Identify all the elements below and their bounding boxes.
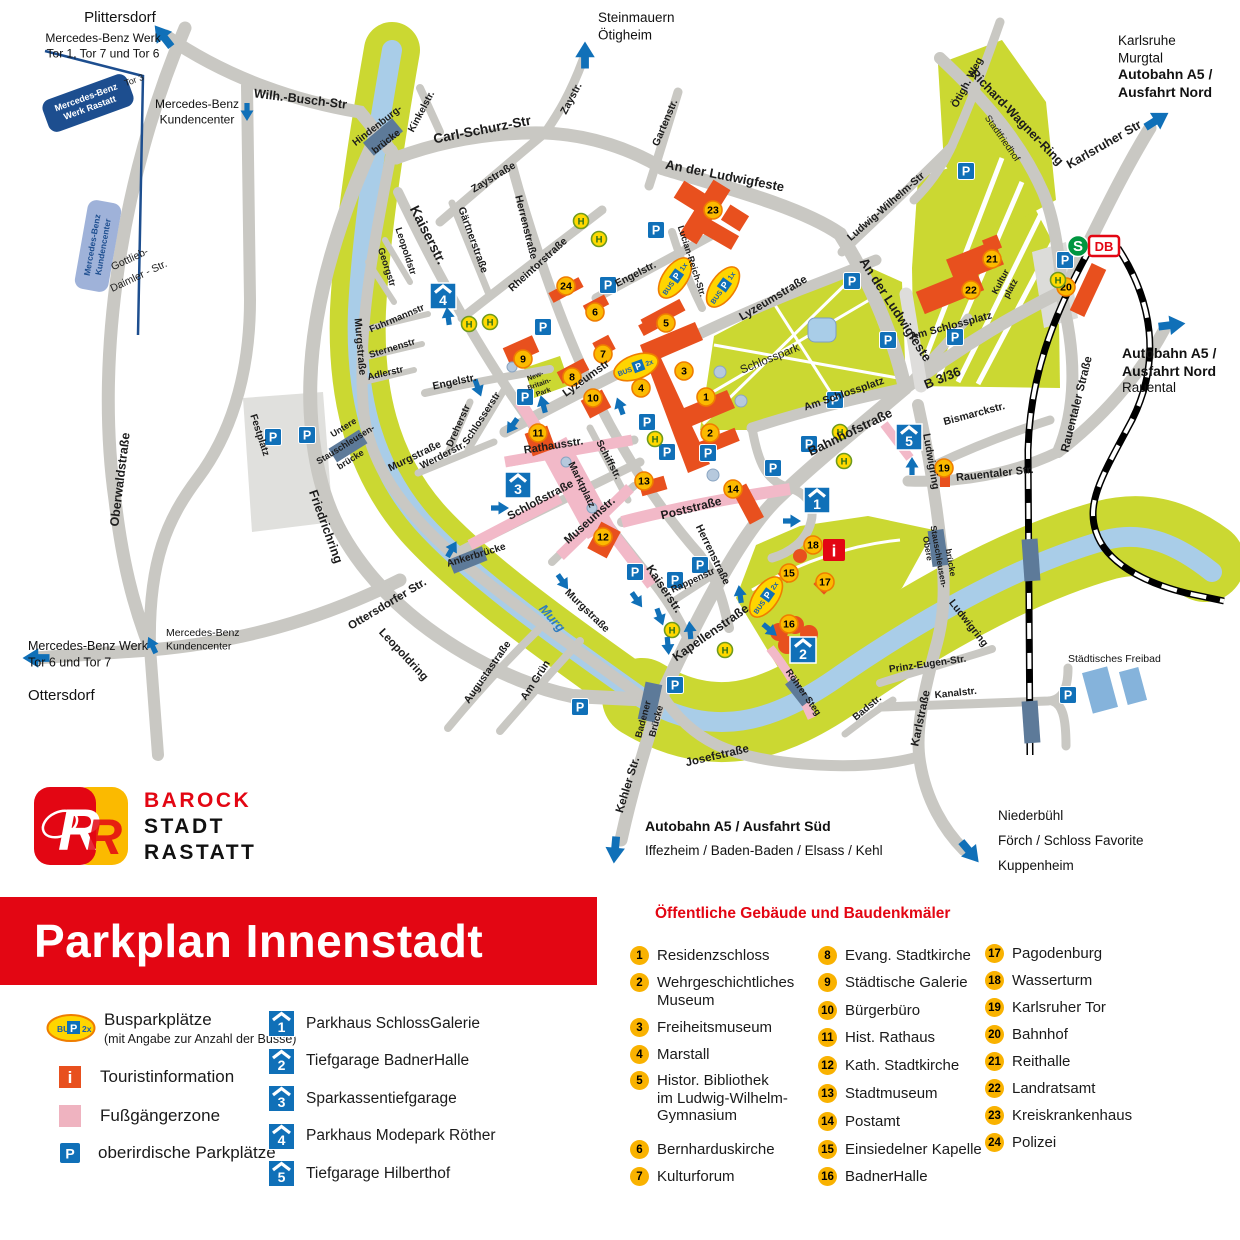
garage-icon: 2 (268, 1048, 295, 1075)
svg-text:P: P (663, 446, 671, 460)
svg-text:4: 4 (439, 292, 447, 308)
building-number-badge: 9 (818, 973, 837, 992)
svg-text:9: 9 (520, 354, 526, 366)
parking-icon: P (648, 222, 665, 239)
svg-text:P: P (539, 321, 547, 335)
building-number-badge: 1 (630, 946, 649, 965)
building-name: Freiheitsmuseum (657, 1018, 772, 1037)
street-label: Kanalstr. (934, 686, 977, 701)
svg-text:P: P (643, 416, 651, 430)
garage-icon: 4 (268, 1123, 295, 1150)
svg-text:H: H (596, 234, 603, 245)
poi-marker-10: 10 (584, 389, 602, 407)
building-list-item-19: 19Karlsruher Tor (985, 998, 1106, 1017)
poi-marker-5: 5 (657, 314, 675, 332)
parking-icon: P (765, 460, 782, 477)
building-list-item-14: 14Postamt (818, 1112, 900, 1131)
building-list-item-22: 22Landratsamt (985, 1079, 1095, 1098)
building-number-badge: 14 (818, 1112, 837, 1131)
street-label: Rauentaler Str. (955, 464, 1033, 484)
svg-text:16: 16 (783, 619, 795, 631)
building-number-badge: 24 (985, 1133, 1004, 1152)
building-list-item-13: 13Stadtmuseum (818, 1084, 938, 1103)
parking-icon: P (659, 444, 676, 461)
building-name: Karlsruher Tor (1012, 998, 1106, 1017)
svg-text:24: 24 (560, 281, 572, 293)
building-list-item-16: 16BadnerHalle (818, 1167, 928, 1186)
building-list-item-17: 17Pagodenburg (985, 944, 1102, 963)
svg-text:R: R (86, 809, 122, 865)
legend-info-row: i Touristinformation (59, 1066, 234, 1088)
building-list-item-18: 18Wasserturm (985, 971, 1092, 990)
fountain-dot (735, 395, 747, 407)
parking-icon: P (572, 699, 589, 716)
freibad-buildings (1082, 666, 1147, 713)
garage-marker-5: 5 (896, 424, 922, 450)
building-number-badge: 5 (630, 1071, 649, 1090)
parking-icon: P (639, 414, 656, 431)
bus-parking-icon: BUS P 2x (46, 1013, 96, 1043)
svg-text:i: i (832, 542, 837, 561)
svg-text:5: 5 (278, 1169, 286, 1185)
place-label: KarlsruheMurgtal (1118, 33, 1176, 66)
svg-text:14: 14 (727, 484, 739, 496)
svg-text:P: P (521, 391, 529, 405)
building-number-badge: 8 (818, 946, 837, 965)
svg-text:17: 17 (819, 577, 831, 589)
street-label: Poststraße (659, 494, 723, 523)
poi-marker-3: 3 (675, 362, 693, 380)
svg-text:21: 21 (986, 254, 998, 266)
building-number-badge: 3 (630, 1018, 649, 1037)
parking-icon: P (667, 677, 684, 694)
garage-legend-row-1: 1Parkhaus SchlossGalerie (268, 1010, 480, 1037)
svg-text:P: P (631, 566, 639, 580)
svg-text:3: 3 (681, 366, 687, 378)
parking-icon: P (535, 319, 552, 336)
garage-legend-label: Parkhaus SchlossGalerie (306, 1015, 480, 1033)
building-list-item-9: 9Städtische Galerie (818, 973, 968, 992)
street-label: Engelstr. (613, 259, 658, 290)
bus-stop-icon: H (592, 232, 607, 247)
svg-text:P: P (704, 447, 712, 461)
place-label: Autobahn A5 /Ausfahrt Nord (1122, 345, 1216, 379)
parking-icon: P (627, 564, 644, 581)
parking-icon: P (958, 163, 975, 180)
building-name: Bürgerbüro (845, 1001, 920, 1020)
svg-text:22: 22 (965, 285, 977, 297)
building-list-item-24: 24Polizei (985, 1133, 1056, 1152)
logo-line-3: RASTATT (144, 840, 256, 866)
building-number-badge: 15 (818, 1140, 837, 1159)
building-list-item-20: 20Bahnhof (985, 1025, 1068, 1044)
building-name: Kath. Stadtkirche (845, 1056, 959, 1075)
poi-marker-16: 16 (780, 615, 798, 633)
garage-icon: 5 (268, 1160, 295, 1187)
building-name: Histor. Bibliothekim Ludwig-Wilhelm-Gymn… (657, 1071, 788, 1125)
svg-text:P: P (70, 1023, 77, 1035)
building-number-badge: 23 (985, 1106, 1004, 1125)
svg-text:5: 5 (663, 318, 669, 330)
building-list-item-11: 11Hist. Rathaus (818, 1028, 935, 1047)
building-number-badge: 13 (818, 1084, 837, 1103)
parking-icon: P (1060, 687, 1077, 704)
parking-icon: P (299, 427, 316, 444)
poi-marker-1: 1 (697, 388, 715, 406)
building-list-item-23: 23Kreiskrankenhaus (985, 1106, 1132, 1125)
legend-bus-row: BUS P 2x Busparkplätze (mit Angabe zur A… (46, 1010, 296, 1046)
garage-marker-2: 2 (790, 637, 816, 663)
place-label: NiederbühlFörch / Schloss FavoriteKuppen… (998, 808, 1144, 873)
building-name: Städtische Galerie (845, 973, 968, 992)
building-number-badge: 7 (630, 1167, 649, 1186)
svg-text:H: H (722, 645, 729, 656)
poi-marker-4: 4 (632, 379, 650, 397)
building-list-item-12: 12Kath. Stadtkirche (818, 1056, 959, 1075)
building-name: Pagodenburg (1012, 944, 1102, 963)
poi-marker-12: 12 (594, 528, 612, 546)
building-number-badge: 17 (985, 944, 1004, 963)
poi-marker-13: 13 (635, 472, 653, 490)
svg-text:H: H (841, 456, 848, 467)
street-label: Bismarckstr. (942, 400, 1006, 428)
poi-marker-15: 15 (780, 564, 798, 582)
poi-marker-23: 23 (704, 201, 722, 219)
tourist-info-marker: i (823, 539, 845, 561)
svg-text:5: 5 (905, 433, 913, 449)
building-number-badge: 22 (985, 1079, 1004, 1098)
direction-arrow (783, 515, 801, 528)
svg-text:P: P (951, 331, 959, 345)
svg-text:11: 11 (532, 428, 543, 440)
place-label: Mercedes-Benz WerkTor 1, Tor 7 und Tor 6 (45, 31, 161, 61)
place-label: Plittersdorf (84, 9, 157, 26)
poi-marker-9: 9 (514, 350, 532, 368)
schlosspark-pond (808, 318, 836, 342)
surface-parking-icon: P (60, 1143, 80, 1163)
building-list-title: Öffentliche Gebäude und Baudenkmäler (655, 905, 950, 923)
building-list-item-5: 5Histor. Bibliothekim Ludwig-Wilhelm-Gym… (630, 1071, 788, 1125)
building-name: Reithalle (1012, 1052, 1070, 1071)
legend-parking-row: P oberirdische Parkplätze (60, 1143, 276, 1163)
bus-stop-icon: H (718, 643, 733, 658)
svg-text:1: 1 (278, 1019, 286, 1035)
logo-line-2: STADT (144, 814, 256, 840)
svg-text:P: P (269, 431, 277, 445)
garage-legend-row-5: 5Tiefgarage Hilberthof (268, 1160, 450, 1187)
garage-legend-label: Parkhaus Modepark Röther (306, 1127, 496, 1145)
garage-legend-label: Tiefgarage BadnerHalle (306, 1052, 469, 1070)
svg-text:H: H (487, 317, 494, 328)
svg-text:15: 15 (783, 568, 795, 580)
page-title: Parkplan Innenstadt (34, 897, 597, 985)
svg-text:P: P (848, 275, 856, 289)
svg-text:3: 3 (278, 1094, 286, 1110)
svg-text:P: P (1061, 254, 1069, 268)
building-list-item-3: 3Freiheitsmuseum (630, 1018, 772, 1037)
building-name: Bahnhof (1012, 1025, 1068, 1044)
poi-marker-14: 14 (724, 480, 742, 498)
building-list-item-10: 10Bürgerbüro (818, 1001, 920, 1020)
building-name: Landratsamt (1012, 1079, 1095, 1098)
svg-text:2: 2 (278, 1057, 286, 1073)
street-label: Wilh.-Busch-Str (253, 86, 348, 111)
building-name: Wasserturm (1012, 971, 1092, 990)
building-name: Kulturforum (657, 1167, 735, 1186)
svg-text:H: H (669, 625, 676, 636)
city-logo: R R BAROCK STADT RASTATT (30, 784, 256, 868)
svg-text:6: 6 (592, 307, 598, 319)
building-list-item-7: 7Kulturforum (630, 1167, 735, 1186)
building-number-badge: 4 (630, 1045, 649, 1064)
place-label: Mercedes-BenzKundencenter (155, 97, 239, 127)
direction-arrow (611, 395, 629, 416)
title-bar: Parkplan Innenstadt (0, 897, 597, 985)
parking-icon: P (880, 332, 897, 349)
garage-legend-row-4: 4Parkhaus Modepark Röther (268, 1123, 496, 1150)
garage-legend-label: Tiefgarage Hilberthof (306, 1165, 450, 1183)
place-label: Mercedes-BenzKundencenter (166, 627, 240, 653)
building-name: WehrgeschichtlichesMuseum (657, 973, 794, 1009)
poi-marker-21: 21 (983, 250, 1001, 268)
poi-marker-17: 17 (816, 573, 834, 591)
svg-text:H: H (1055, 275, 1062, 286)
building-number-badge: 18 (985, 971, 1004, 990)
pedestrian-zone-icon (59, 1105, 81, 1127)
garage-legend-row-2: 2Tiefgarage BadnerHalle (268, 1048, 469, 1075)
bus-stop-icon: H (483, 315, 498, 330)
building-number-badge: 20 (985, 1025, 1004, 1044)
place-label: Rauental (1122, 380, 1176, 395)
garage-legend-row-3: 3Sparkassentiefgarage (268, 1085, 457, 1112)
svg-text:10: 10 (587, 393, 599, 405)
mercedes-box: Mercedes-BenzWerk Rastatt (40, 72, 136, 135)
building-list-item-8: 8Evang. Stadtkirche (818, 946, 971, 965)
svg-text:P: P (65, 1146, 74, 1162)
building-name: Hist. Rathaus (845, 1028, 935, 1047)
svg-text:i: i (68, 1068, 73, 1087)
svg-text:H: H (466, 319, 473, 330)
street-label: Leopoldring (376, 627, 430, 684)
building-name: Residenzschloss (657, 946, 770, 965)
svg-text:23: 23 (707, 205, 719, 217)
building-name: BadnerHalle (845, 1167, 928, 1186)
poi-marker-11: 11 (529, 424, 547, 442)
building-name: Bernharduskirche (657, 1140, 775, 1159)
svg-text:P: P (769, 462, 777, 476)
svg-text:H: H (578, 216, 585, 227)
place-label: Iffezheim / Baden-Baden / Elsass / Kehl (645, 843, 883, 858)
building-number-badge: 12 (818, 1056, 837, 1075)
svg-text:1: 1 (813, 496, 821, 512)
place-label: Autobahn A5 / Ausfahrt Süd (645, 818, 831, 834)
svg-text:3: 3 (514, 481, 522, 497)
bus-parking-marker: BUSP1x (700, 261, 746, 312)
building-number-badge: 2 (630, 973, 649, 992)
building-number-badge: 19 (985, 998, 1004, 1017)
place-label: Städtisches Freibad (1068, 653, 1161, 665)
parkplan-poster: Mercedes-BenzWerk Rastatt Mercedes-BenzK… (0, 0, 1240, 1240)
bus-stop-icon: H (574, 214, 589, 229)
svg-text:13: 13 (638, 476, 650, 488)
svg-text:P: P (962, 165, 970, 179)
place-label: Ottersdorf (28, 687, 96, 704)
poi-marker-2: 2 (701, 424, 719, 442)
svg-text:P: P (884, 334, 892, 348)
building-name: Marstall (657, 1045, 710, 1064)
svg-text:P: P (303, 429, 311, 443)
bus-stop-icon: H (462, 317, 477, 332)
svg-text:H: H (652, 434, 659, 445)
svg-text:12: 12 (597, 532, 609, 544)
building-name: Stadtmuseum (845, 1084, 938, 1103)
parking-icon: P (844, 273, 861, 290)
svg-text:2: 2 (799, 646, 807, 662)
building-name: Postamt (845, 1112, 900, 1131)
svg-text:P: P (652, 224, 660, 238)
building-number-badge: 16 (818, 1167, 837, 1186)
fountain-dot (707, 469, 719, 481)
garage-icon: 3 (268, 1085, 295, 1112)
garage-icon: 1 (268, 1010, 295, 1037)
building-name: Kreiskrankenhaus (1012, 1106, 1132, 1125)
building-name: Evang. Stadtkirche (845, 946, 971, 965)
poi-marker-6: 6 (586, 303, 604, 321)
city-map: Mercedes-BenzWerk Rastatt Mercedes-BenzK… (0, 0, 1240, 895)
svg-text:P: P (1064, 689, 1072, 703)
db-icon: DB (1089, 236, 1119, 256)
building-list-item-6: 6Bernharduskirche (630, 1140, 775, 1159)
legend-zone-label: Fußgängerzone (100, 1106, 220, 1126)
garage-marker-1: 1 (804, 487, 830, 513)
direction-arrow (627, 589, 648, 611)
svg-text:1: 1 (703, 392, 709, 404)
svg-text:P: P (604, 279, 612, 293)
place-label: Autobahn A5 /Ausfahrt Nord (1118, 66, 1212, 100)
logo-line-1: BAROCK (144, 788, 256, 814)
svg-text:18: 18 (807, 540, 819, 552)
street-label: Karlstraße (909, 689, 933, 747)
garage-marker-4: 4 (430, 283, 456, 309)
building-list-item-2: 2WehrgeschichtlichesMuseum (630, 973, 794, 1009)
svg-text:2: 2 (707, 428, 713, 440)
street-label: Herrenstraße (512, 194, 539, 260)
building-list-item-4: 4Marstall (630, 1045, 710, 1064)
building-number-badge: 10 (818, 1001, 837, 1020)
legend-zone-row: Fußgängerzone (59, 1105, 220, 1127)
legend-parking-label: oberirdische Parkplätze (98, 1143, 276, 1163)
svg-text:S: S (1073, 238, 1083, 255)
poi-marker-22: 22 (962, 281, 980, 299)
svg-text:4: 4 (278, 1132, 286, 1148)
svg-text:2x: 2x (82, 1024, 92, 1034)
poi-marker-18: 18 (804, 536, 822, 554)
svg-text:4: 4 (638, 383, 644, 395)
parking-icon: P (700, 445, 717, 462)
bus-stop-icon: H (665, 623, 680, 638)
svg-text:P: P (576, 701, 584, 715)
building-list-item-15: 15Einsiedelner Kapelle (818, 1140, 982, 1159)
street-label: Gärtnerstraße (455, 205, 490, 275)
legend-info-label: Touristinformation (100, 1067, 234, 1087)
garage-legend-label: Sparkassentiefgarage (306, 1090, 457, 1108)
bus-stop-icon: H (648, 432, 663, 447)
logo-mark: R R (30, 784, 132, 868)
sbahn-icon: S (1068, 236, 1089, 257)
fountain-dot (714, 366, 726, 378)
svg-text:P: P (671, 679, 679, 693)
building-list-item-1: 1Residenzschloss (630, 946, 770, 965)
building-number-badge: 6 (630, 1140, 649, 1159)
tourist-info-icon: i (59, 1066, 81, 1088)
building-number-badge: 21 (985, 1052, 1004, 1071)
bus-stop-icon: H (1051, 273, 1066, 288)
building-name: Einsiedelner Kapelle (845, 1140, 982, 1159)
garage-marker-3: 3 (505, 472, 531, 498)
building-number-badge: 11 (818, 1028, 837, 1047)
building-name: Polizei (1012, 1133, 1056, 1152)
bus-stop-icon: H (837, 454, 852, 469)
building-list-item-21: 21Reithalle (985, 1052, 1070, 1071)
poi-marker-24: 24 (557, 277, 575, 295)
place-label: SteinmauernÖtigheim (598, 10, 675, 43)
svg-text:DB: DB (1095, 239, 1114, 254)
